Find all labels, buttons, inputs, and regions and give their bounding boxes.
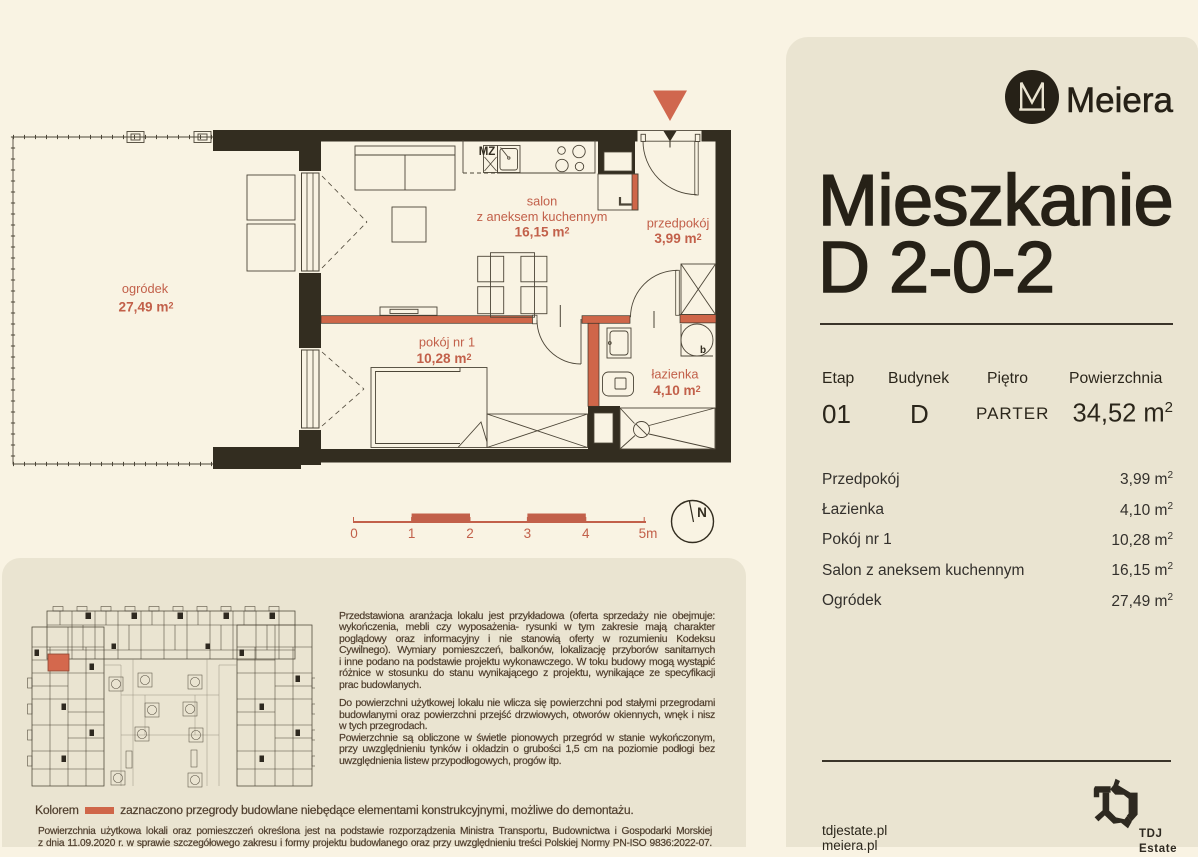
svg-text:przedpokój: przedpokój [647,216,710,231]
svg-text:16,15 m2: 16,15 m2 [515,225,570,240]
svg-text:N: N [697,505,707,520]
svg-text:b: b [700,345,706,356]
svg-text:pokój nr 1: pokój nr 1 [419,335,475,350]
svg-text:1: 1 [408,526,416,541]
svg-text:5m: 5m [639,526,658,541]
svg-text:łazienka: łazienka [652,367,700,382]
svg-text:0: 0 [350,526,358,541]
svg-text:3,99 m2: 3,99 m2 [654,231,701,246]
svg-text:2: 2 [466,526,474,541]
svg-text:10,28 m2: 10,28 m2 [417,351,472,366]
svg-text:MZ: MZ [479,146,496,158]
svg-text:27,49 m2: 27,49 m2 [119,300,174,315]
svg-text:ogródek: ogródek [122,281,169,296]
svg-text:4: 4 [582,526,590,541]
svg-text:3: 3 [524,526,532,541]
svg-text:z aneksem kuchennym: z aneksem kuchennym [477,209,608,224]
svg-text:4,10 m2: 4,10 m2 [653,383,700,398]
svg-text:salon: salon [527,194,558,209]
